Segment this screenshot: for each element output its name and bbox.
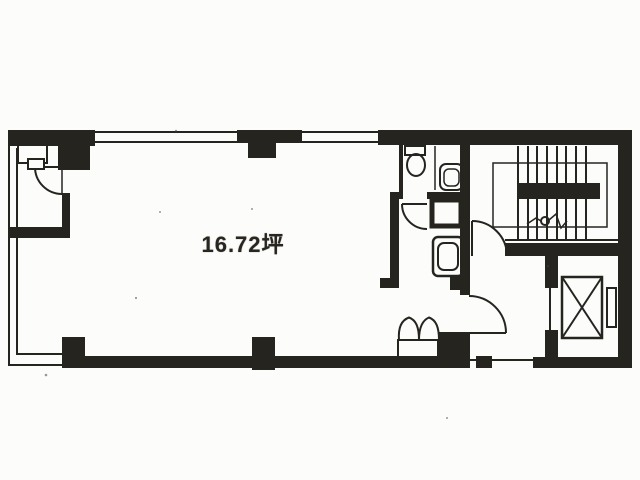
wall-utility-west	[390, 193, 399, 287]
stair-landing-bar	[518, 183, 600, 199]
wall-elevator-shaft-top-stub	[545, 253, 558, 288]
scan-speck	[251, 208, 253, 210]
wall-wc-divider-left	[390, 192, 403, 199]
floorplan-page: 16.72坪	[0, 0, 640, 480]
elevator-hall-door-swing-arc	[469, 296, 506, 333]
wall-utility-south	[380, 278, 399, 288]
pipe-shaft-duct	[432, 200, 461, 226]
scan-speck	[45, 374, 48, 377]
wc-door	[402, 204, 427, 229]
utility-basin	[433, 237, 463, 276]
wall-utility-south-east	[450, 276, 462, 290]
walls	[8, 130, 632, 370]
wall-block-entrance	[438, 332, 470, 368]
wc-sink-basin	[444, 169, 459, 186]
double-swing-door	[398, 318, 439, 358]
scan-speck	[547, 265, 549, 267]
wall-entry-south	[8, 227, 70, 238]
elevator-hall-door	[469, 296, 506, 333]
wall-stair-hall-divider	[505, 243, 632, 256]
entry-door	[35, 167, 62, 194]
pillar-bottom-1	[62, 337, 85, 368]
scan-speck	[175, 130, 177, 132]
entry-counter	[18, 142, 47, 169]
entry-door-swing-arc	[35, 167, 62, 194]
wall-stub-bottom-hall	[476, 356, 492, 368]
scan-speck	[135, 297, 137, 299]
pillar-top-left	[58, 146, 90, 170]
wc-door-swing-arc	[402, 204, 427, 229]
scan-speck	[446, 417, 448, 419]
double-door-left-leaf	[399, 318, 419, 341]
scan-noise	[45, 130, 549, 419]
pillar-top-mid	[248, 143, 276, 158]
wall-top-left	[8, 130, 95, 146]
area-label: 16.72坪	[183, 231, 303, 259]
toilet	[405, 146, 425, 176]
scan-speck	[159, 211, 161, 213]
pillar-entry-east	[62, 193, 70, 228]
entry-counter-sink	[28, 159, 44, 169]
floorplan-drawing	[0, 0, 640, 480]
wall-wc-west	[399, 145, 403, 193]
elevator-counterweight	[607, 288, 616, 327]
pillar-bottom-2	[252, 337, 275, 370]
double-door-right-leaf	[419, 318, 439, 341]
wall-top-mid	[237, 130, 302, 143]
utility-basin-inner	[438, 243, 458, 270]
wall-elevator-shaft-bottom-stub	[545, 330, 558, 368]
toilet-bowl	[407, 154, 425, 176]
wall-top-right	[378, 130, 632, 145]
stair-break-symbol-zigzag-left	[527, 218, 541, 224]
wall-bottom-1	[85, 356, 252, 368]
double-door-sill	[398, 340, 438, 357]
wc-sink	[440, 164, 463, 190]
elevator	[562, 277, 616, 338]
